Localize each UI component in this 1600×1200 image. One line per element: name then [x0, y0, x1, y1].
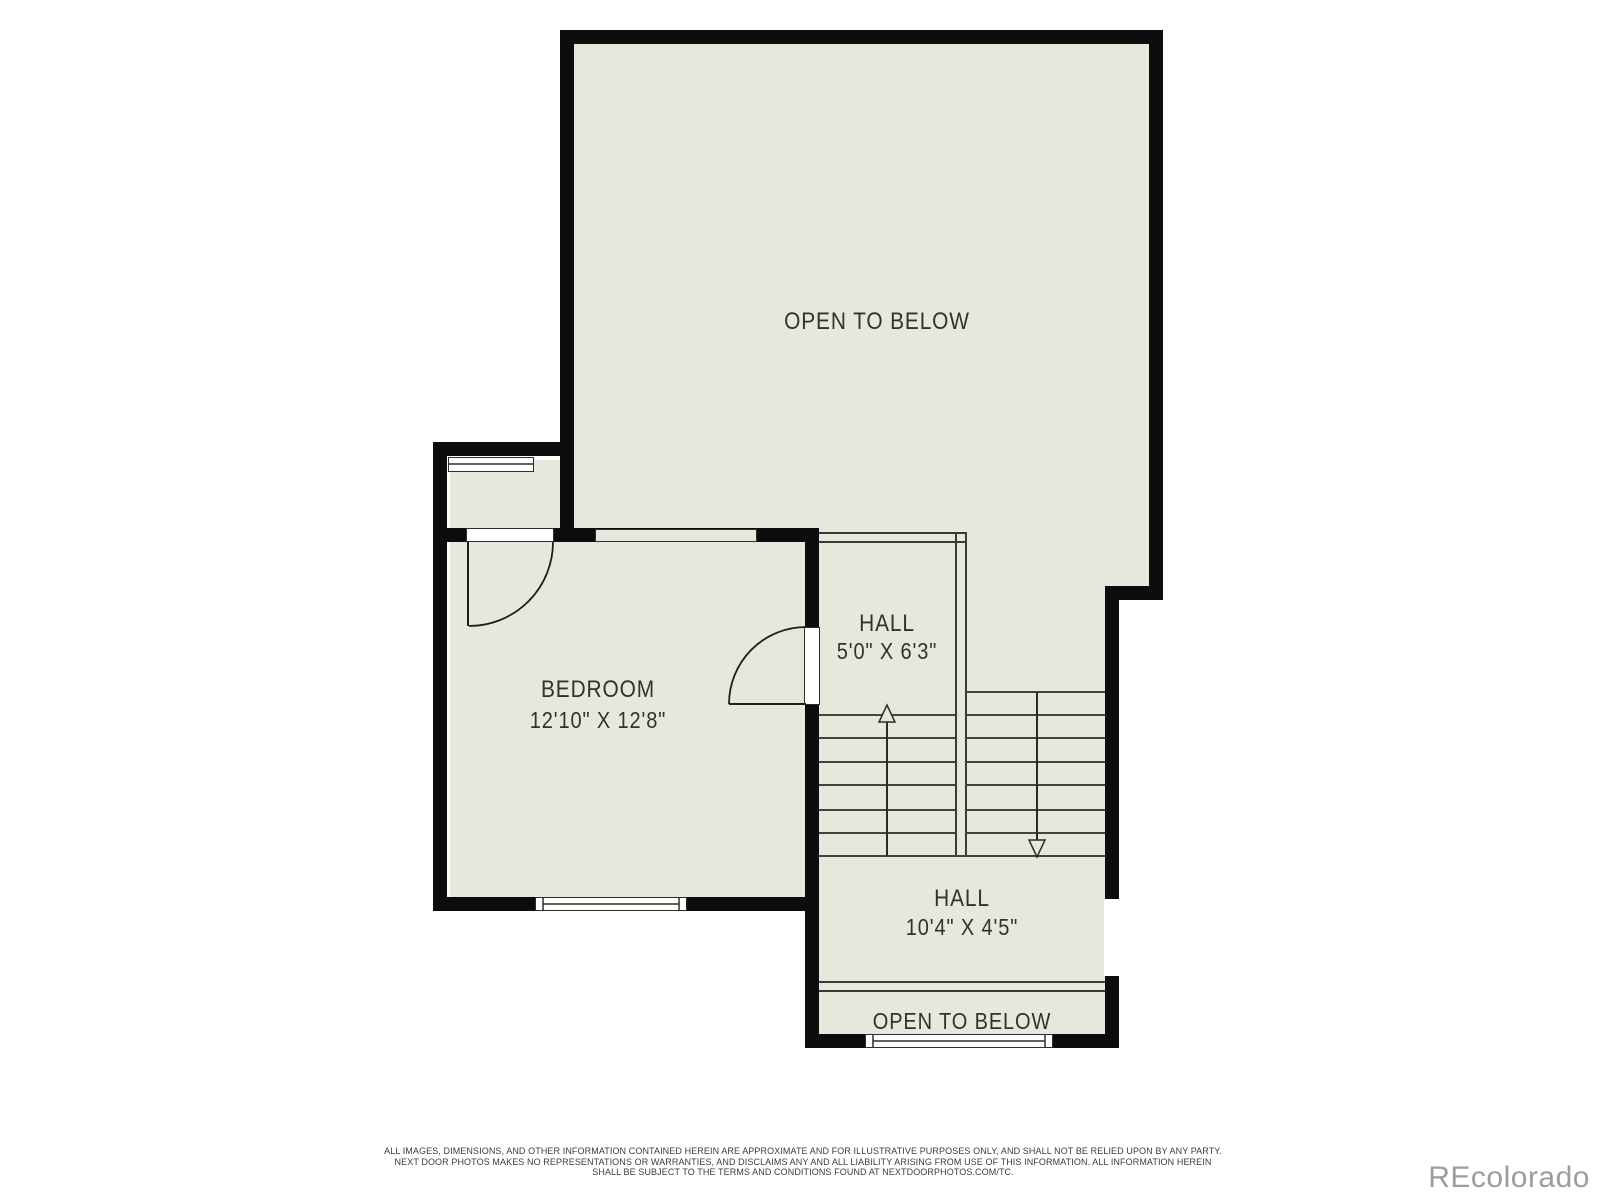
- disclaimer-line-1: ALL IMAGES, DIMENSIONS, AND OTHER INFORM…: [303, 1146, 1303, 1157]
- wall-opening-right: [1104, 899, 1121, 976]
- room-label-bedroom: BEDROOM: [541, 676, 655, 704]
- wall-left: [433, 442, 447, 911]
- window-closet: [448, 457, 534, 472]
- window-bedroom-bottom: [535, 897, 687, 911]
- disclaimer-line-3: SHALL BE SUBJECT TO THE TERMS AND CONDIT…: [303, 1167, 1303, 1178]
- wall-right-lower: [1105, 586, 1119, 1048]
- watermark-recolorado: REcolorado: [1428, 1161, 1590, 1195]
- room-dims-bedroom: 12'10" X 12'8": [530, 707, 666, 733]
- room-label-hall-lower: HALL: [934, 885, 990, 913]
- window-bedroom-top: [595, 529, 757, 542]
- room-label-hall-upper: HALL: [859, 610, 915, 638]
- wall-right-upper: [1149, 30, 1163, 600]
- bedroom-door-opening: [804, 627, 820, 705]
- room-fill-hall-stairs: [817, 532, 1105, 1034]
- disclaimer-line-2: NEXT DOOR PHOTOS MAKES NO REPRESENTATION…: [303, 1157, 1303, 1168]
- disclaimer: ALL IMAGES, DIMENSIONS, AND OTHER INFORM…: [303, 1146, 1303, 1178]
- room-dims-hall-upper: 5'0" X 6'3": [837, 638, 937, 664]
- wall-open-below-left: [560, 30, 574, 542]
- room-dims-hall-lower: 10'4" X 4'5": [906, 914, 1018, 940]
- room-label-open-to-below: OPEN TO BELOW: [784, 308, 970, 336]
- floor-plan-canvas: OPEN TO BELOW BEDROOM 12'10" X 12'8" HAL…: [0, 0, 1600, 1200]
- wall-bedroom-right: [805, 532, 819, 1048]
- room-label-open-to-below-bottom: OPEN TO BELOW: [873, 1007, 1051, 1035]
- closet-door-opening: [466, 528, 554, 542]
- window-bottom: [865, 1034, 1053, 1048]
- wall-closet-top: [433, 442, 573, 456]
- wall-top: [560, 30, 1163, 44]
